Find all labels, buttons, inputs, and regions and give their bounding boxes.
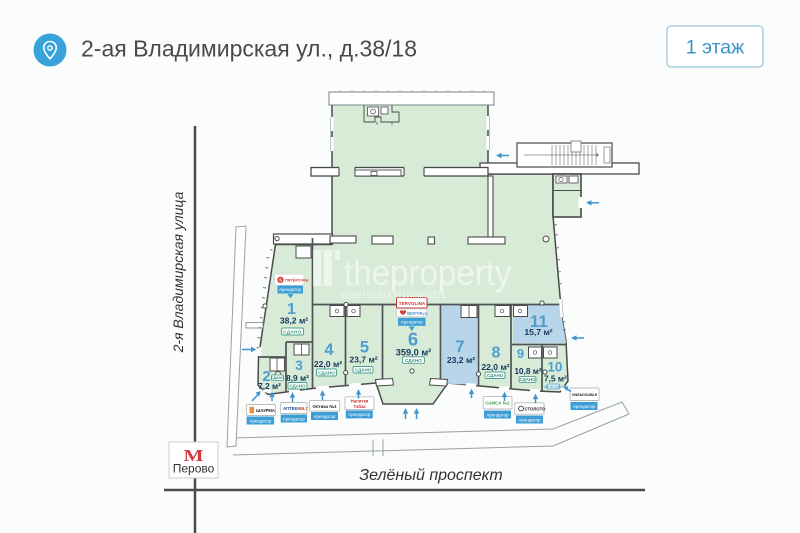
svg-text:23,7 м²: 23,7 м² — [349, 355, 377, 365]
svg-text:Арендатор: Арендатор — [314, 414, 337, 419]
svg-text:359,0 м²: 359,0 м² — [396, 348, 431, 358]
svg-text:СДАНО: СДАНО — [520, 377, 537, 382]
svg-text:9: 9 — [517, 346, 524, 361]
svg-text:Табак: Табак — [353, 404, 366, 409]
svg-text:4: 4 — [324, 341, 334, 359]
svg-text:10,8 м²: 10,8 м² — [514, 366, 542, 376]
svg-text:1 этаж: 1 этаж — [686, 37, 744, 59]
svg-text:ШАУРМА: ШАУРМА — [256, 408, 275, 413]
svg-text:Перово: Перово — [173, 462, 215, 476]
svg-text:АПТЕКА: АПТЕКА — [283, 406, 300, 411]
svg-text:7,5 м²: 7,5 м² — [544, 374, 567, 384]
svg-text:ПЯТЁРОЧКА: ПЯТЁРОЧКА — [285, 279, 309, 283]
svg-text:Арендатор: Арендатор — [519, 417, 542, 422]
svg-text:ONE&DOUBLE: ONE&DOUBLE — [572, 393, 598, 397]
svg-text:Арендатор: Арендатор — [283, 416, 306, 421]
svg-text:СДАНО: СДАНО — [405, 358, 422, 363]
svg-text:23,2 м²: 23,2 м² — [447, 355, 475, 365]
svg-text:6: 6 — [408, 329, 418, 350]
svg-text:2-я Владимирская улица: 2-я Владимирская улица — [170, 191, 186, 353]
svg-text:Арендатор: Арендатор — [487, 412, 510, 417]
svg-text:Арендатор: Арендатор — [279, 287, 302, 292]
svg-text:ЗДОРОВ.ру: ЗДОРОВ.ру — [407, 312, 429, 316]
svg-text:22,0 м²: 22,0 м² — [314, 359, 342, 369]
svg-text:22,0 м²: 22,0 м² — [481, 362, 509, 372]
svg-text:Арендатор: Арендатор — [249, 418, 272, 423]
svg-text:Зелёный проспект: Зелёный проспект — [359, 467, 502, 484]
svg-text:САМСА №1: САМСА №1 — [485, 401, 510, 406]
svg-text:СДАНО: СДАНО — [318, 370, 335, 375]
svg-text:СДАНО: СДАНО — [487, 373, 504, 378]
svg-text:2-ая Владимирская ул., д.38/18: 2-ая Владимирская ул., д.38/18 — [81, 36, 417, 62]
svg-text:СДАНО: СДАНО — [290, 384, 307, 389]
svg-text:СДАНО: СДАНО — [283, 330, 302, 335]
svg-text:Арендатор: Арендатор — [573, 404, 596, 409]
svg-text:36,7: 36,7 — [300, 406, 309, 411]
svg-text:TERVOLINA: TERVOLINA — [399, 301, 426, 306]
svg-text:Напитки: Напитки — [351, 398, 369, 403]
svg-text:8,9 м²: 8,9 м² — [286, 373, 309, 383]
svg-text:СВОБОДНО: СВОБОДНО — [544, 385, 564, 389]
svg-text:8: 8 — [492, 345, 501, 362]
svg-text:10: 10 — [547, 359, 562, 374]
svg-text:7: 7 — [455, 338, 464, 356]
svg-text:Арендатор: Арендатор — [401, 320, 424, 325]
svg-text:7,2 м²: 7,2 м² — [258, 381, 281, 391]
svg-text:Оптика №1: Оптика №1 — [312, 404, 337, 409]
svg-text:СДАНО: СДАНО — [355, 368, 372, 373]
svg-text:СДАНО: СДАНО — [271, 376, 284, 380]
svg-text:СТОЛОТО: СТОЛОТО — [525, 406, 547, 411]
svg-text:15,7 м²: 15,7 м² — [524, 327, 552, 337]
svg-text:Арендатор: Арендатор — [348, 412, 371, 417]
svg-text:38,2 м²: 38,2 м² — [280, 316, 308, 326]
svg-text:theproperty: theproperty — [344, 254, 512, 294]
svg-text:КОММЕРЧЕСКАЯ НЕДВИЖИМОСТЬ: КОММЕРЧЕСКАЯ НЕДВИЖИМОСТЬ — [341, 289, 446, 301]
svg-text:3: 3 — [295, 358, 303, 373]
